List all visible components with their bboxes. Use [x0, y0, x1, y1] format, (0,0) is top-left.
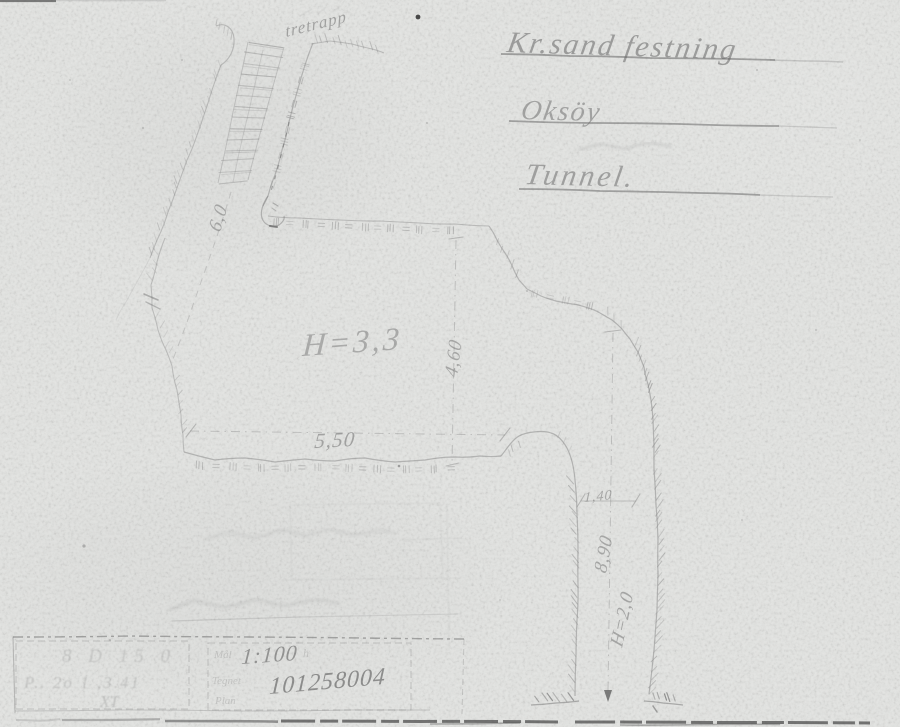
svg-text:Mål: Mål: [213, 649, 232, 661]
svg-text:Plan: Plan: [214, 695, 236, 707]
svg-text:XT: XT: [99, 694, 120, 711]
svg-text:h: h: [303, 646, 309, 660]
svg-text:H=3,3: H=3,3: [301, 320, 404, 363]
svg-text:5,50: 5,50: [314, 427, 357, 453]
svg-text:1,40: 1,40: [584, 487, 613, 506]
svg-text:1:100: 1:100: [241, 640, 299, 669]
svg-text:8 D 15 0: 8 D 15 0: [62, 646, 176, 667]
svg-text:Tegnet: Tegnet: [212, 675, 242, 687]
svg-text:P.. 2o 1 ,3.41: P.. 2o 1 ,3.41: [23, 673, 141, 692]
